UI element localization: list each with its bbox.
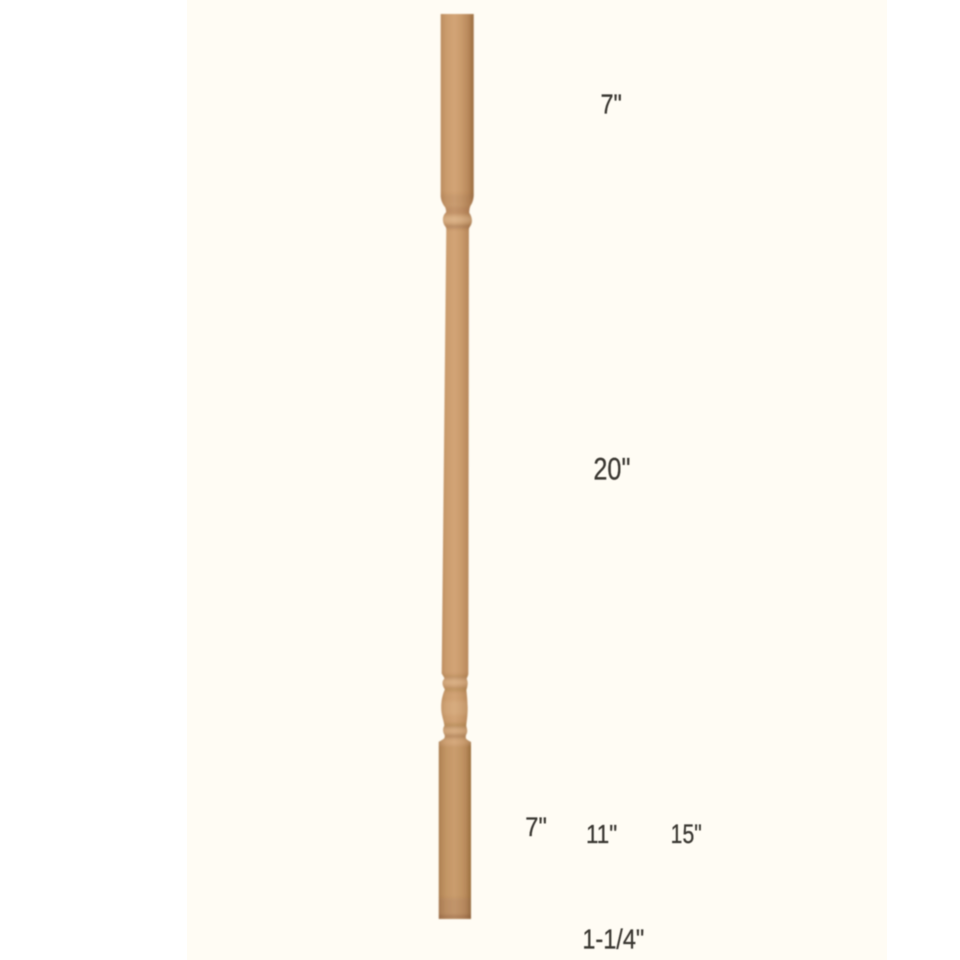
svg-text:7": 7" [525, 813, 547, 843]
svg-text:20": 20" [593, 452, 630, 487]
svg-text:1-1/4": 1-1/4" [582, 925, 644, 955]
svg-text:15": 15" [671, 820, 702, 850]
svg-text:11": 11" [586, 820, 617, 849]
svg-text:7": 7" [600, 90, 621, 120]
